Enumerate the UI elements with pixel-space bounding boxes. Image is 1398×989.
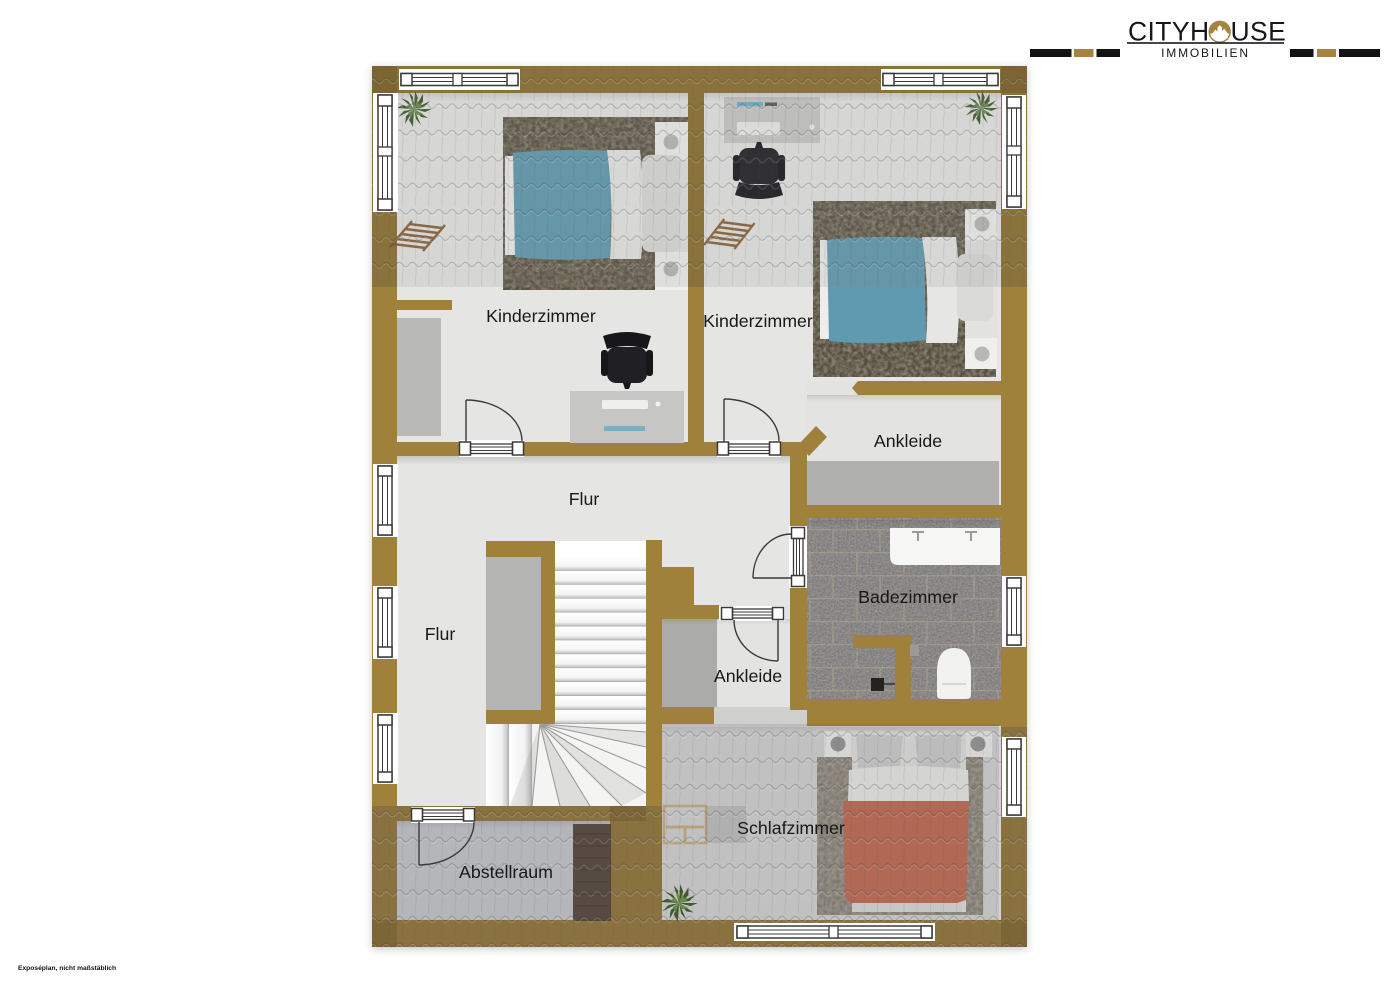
svg-text:Ankleide: Ankleide [874,431,942,451]
svg-text:Ankleide: Ankleide [714,666,782,686]
svg-text:IMMOBILIEN: IMMOBILIEN [1161,46,1250,60]
svg-text:Kinderzimmer: Kinderzimmer [486,306,596,326]
svg-text:USE: USE [1231,17,1287,47]
svg-text:Abstellraum: Abstellraum [459,862,553,882]
svg-text:Badezimmer: Badezimmer [858,587,958,607]
svg-text:CITYH: CITYH [1128,17,1210,47]
svg-text:Flur: Flur [569,489,600,509]
svg-text:Flur: Flur [425,624,456,644]
svg-text:Kinderzimmer: Kinderzimmer [703,311,813,331]
svg-text:Schlafzimmer: Schlafzimmer [737,818,845,838]
svg-text:Exposéplan, nicht maßstäblich: Exposéplan, nicht maßstäblich [18,965,116,972]
